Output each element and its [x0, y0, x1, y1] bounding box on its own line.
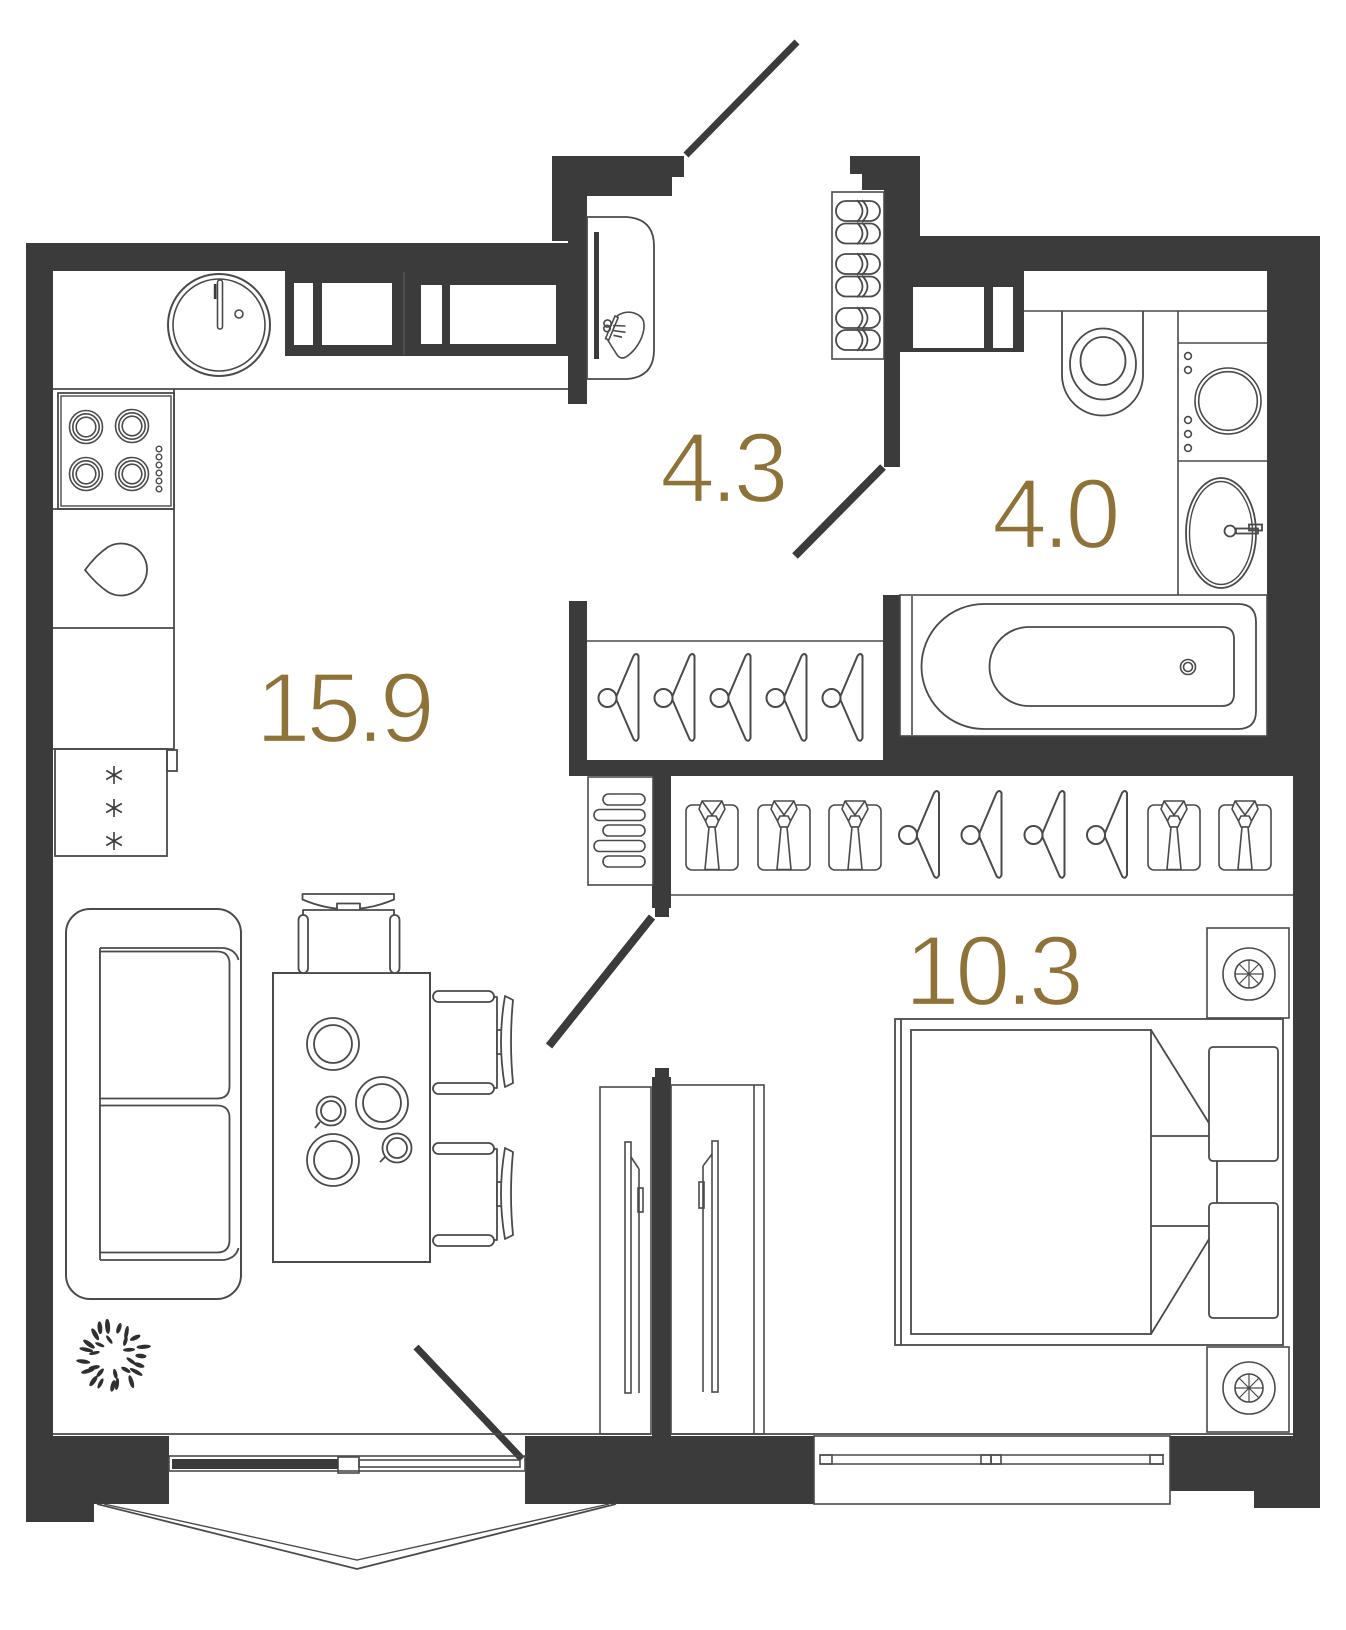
svg-text:4.3: 4.3 — [660, 412, 785, 523]
svg-text:10.3: 10.3 — [905, 915, 1080, 1026]
svg-text:15.9: 15.9 — [256, 652, 431, 763]
svg-text:4.0: 4.0 — [992, 458, 1118, 569]
